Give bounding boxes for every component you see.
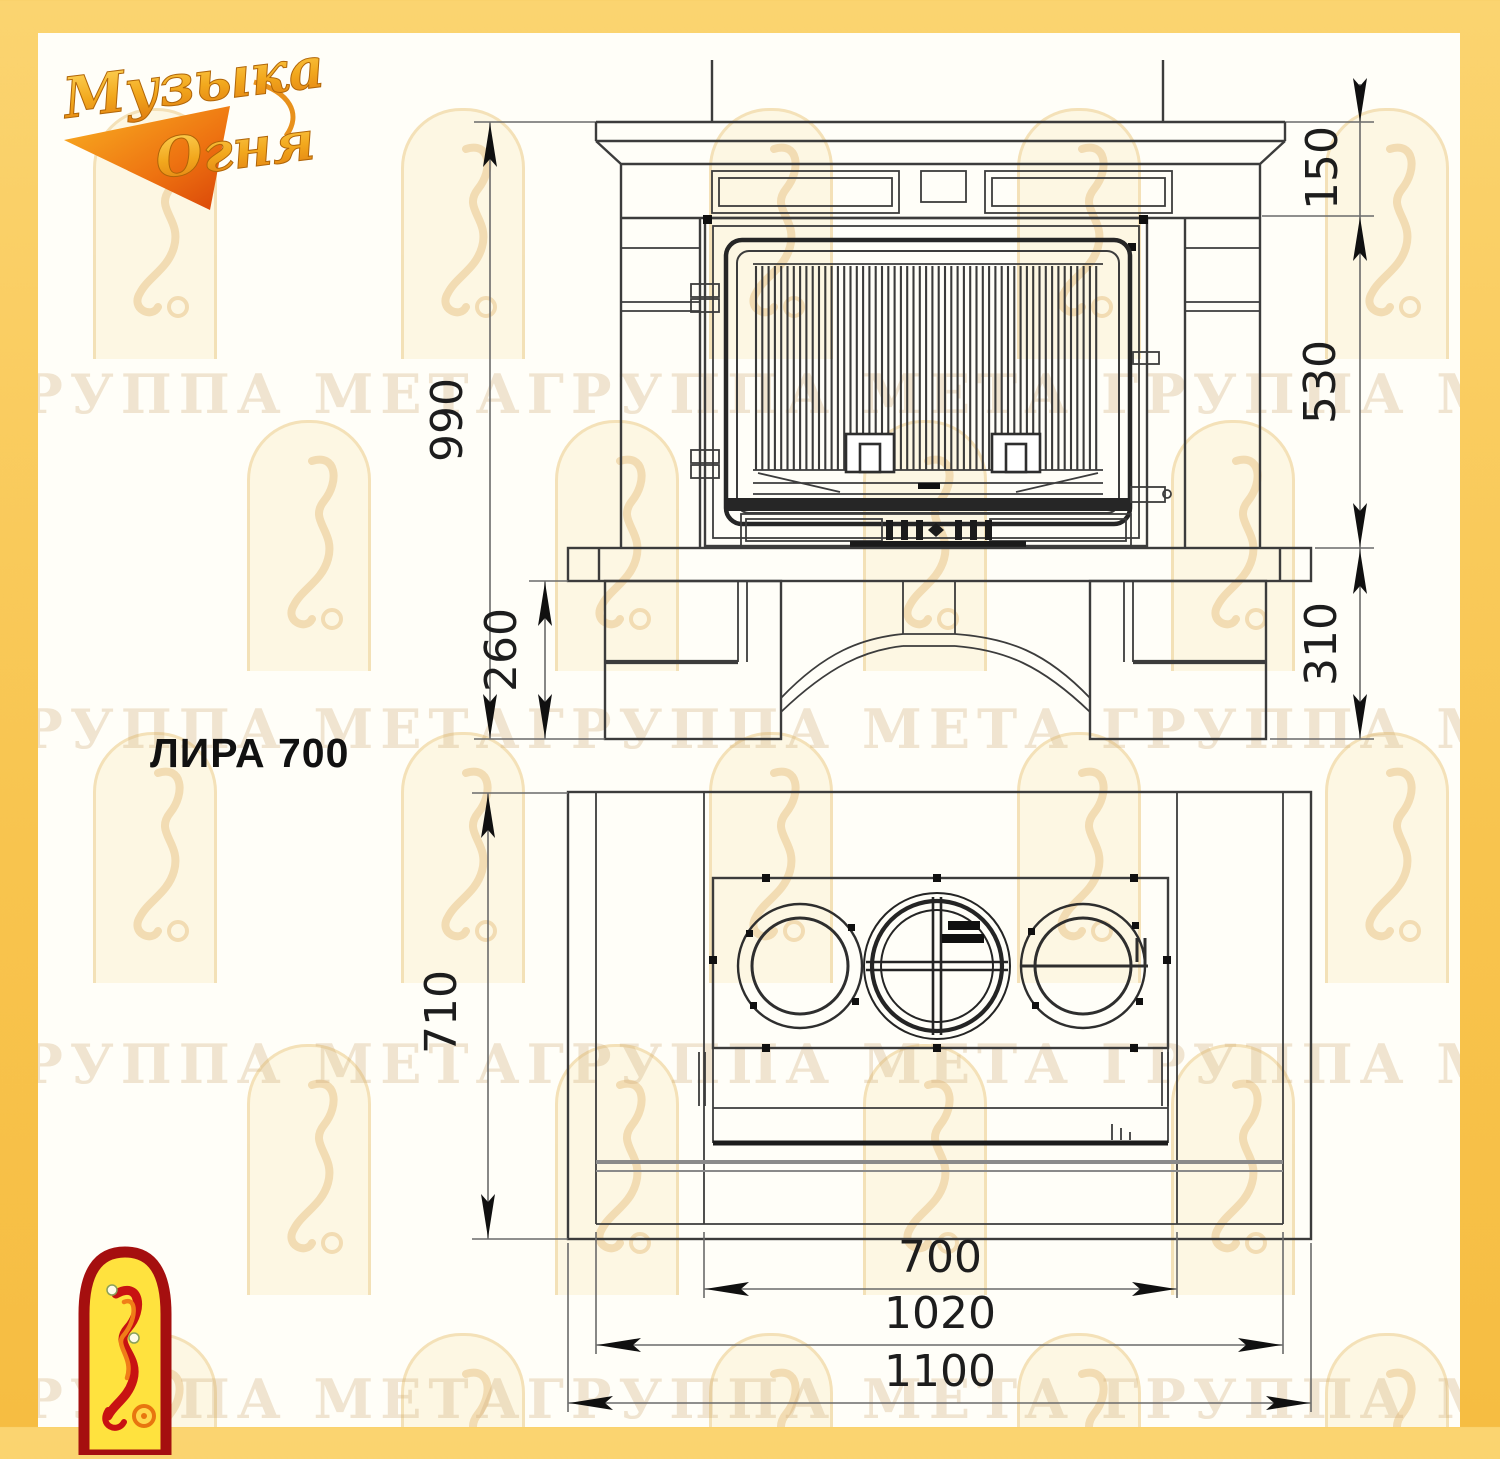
dimension-1100: 1100	[884, 1346, 996, 1397]
door-feet	[846, 434, 1040, 472]
dimension-1020: 1020	[884, 1288, 996, 1339]
outlet-circle-left	[738, 904, 862, 1028]
door-ribs	[756, 266, 1096, 470]
dimension-150: 150	[1297, 126, 1348, 210]
dimension-310: 310	[1296, 602, 1347, 686]
dimension-530: 530	[1295, 340, 1346, 424]
dimension-710: 710	[416, 970, 467, 1054]
front-view: 990 260 150 530 310	[422, 60, 1374, 739]
chimney-pipe-lines	[712, 60, 1163, 121]
front-dimensions: 990 260 150 530 310	[422, 78, 1374, 739]
outlet-circle-middle	[864, 893, 1010, 1039]
frieze-panels	[712, 171, 1172, 213]
dimension-700: 700	[898, 1232, 982, 1283]
model-title: ЛИРА 700	[150, 730, 349, 777]
mantel-shelf	[596, 122, 1285, 164]
vent-strip	[741, 514, 1131, 549]
column-joints	[621, 248, 1260, 311]
dimension-990: 990	[422, 378, 473, 462]
salamander-badge-icon	[76, 1240, 174, 1455]
door-bottom-bar	[727, 498, 1131, 511]
brand-logo: Музыка Огня	[58, 48, 348, 233]
base-piers	[605, 581, 1266, 739]
outlet-circle-right	[1021, 904, 1148, 1028]
page: { "brand": {"name_line1": "Музыка", "nam…	[0, 0, 1500, 1427]
dimension-260: 260	[476, 608, 527, 692]
plan-view: 710 700 1020 1100	[416, 792, 1311, 1412]
plan-side-brackets	[699, 1052, 1168, 1140]
hearth-slab	[568, 548, 1311, 581]
